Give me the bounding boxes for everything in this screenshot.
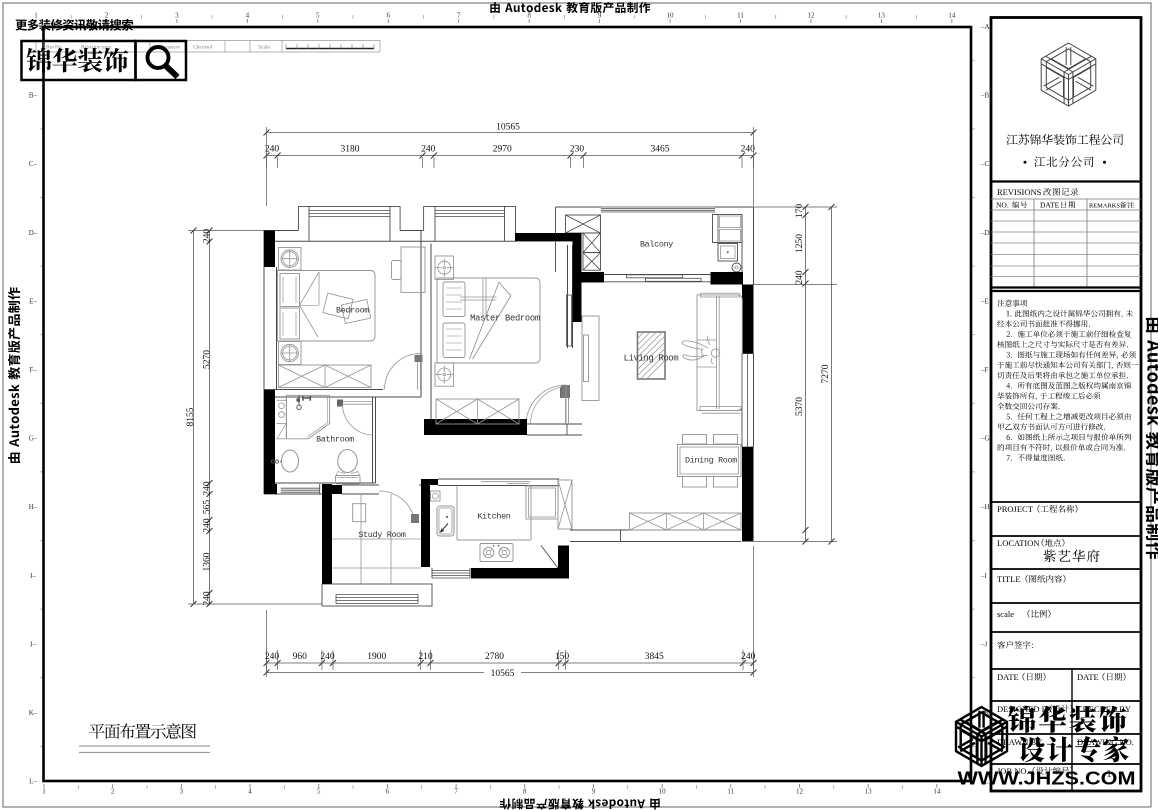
- svg-text:4: 4: [248, 788, 252, 796]
- svg-text:2: 2: [111, 788, 115, 796]
- svg-text:170: 170: [795, 204, 805, 219]
- svg-text:K–: K–: [29, 709, 38, 717]
- svg-text:240: 240: [203, 481, 213, 496]
- svg-text:10565: 10565: [491, 669, 515, 679]
- svg-text:10565: 10565: [496, 123, 520, 133]
- svg-text:7: 7: [457, 12, 461, 20]
- svg-text:–D: –D: [980, 229, 990, 237]
- svg-text:150: 150: [555, 652, 570, 662]
- svg-text:12: 12: [796, 788, 804, 796]
- svg-text:WWW.JHZS.COM: WWW.JHZS.COM: [958, 769, 1136, 789]
- svg-text:5270: 5270: [203, 350, 213, 369]
- svg-text:6: 6: [386, 788, 390, 796]
- svg-text:230: 230: [570, 145, 585, 155]
- svg-text:14: 14: [948, 12, 956, 20]
- svg-text:–A: –A: [980, 23, 990, 31]
- svg-text:9: 9: [592, 788, 596, 796]
- svg-text:5370: 5370: [795, 397, 805, 416]
- svg-text:960: 960: [293, 652, 308, 662]
- svg-text:Study Room: Study Room: [358, 530, 406, 540]
- svg-text:9: 9: [598, 12, 602, 20]
- svg-text:1: 1: [34, 12, 38, 20]
- svg-text:12: 12: [807, 12, 815, 20]
- svg-text:240: 240: [265, 145, 280, 155]
- svg-text:3180: 3180: [341, 145, 360, 155]
- svg-text:REVISIONS: REVISIONS: [997, 187, 1042, 197]
- svg-text:240: 240: [320, 652, 335, 662]
- svg-text:Scale: Scale: [258, 45, 270, 51]
- svg-text:8: 8: [523, 788, 527, 796]
- svg-text:3: 3: [175, 12, 179, 20]
- svg-text:Kitchen: Kitchen: [477, 512, 510, 522]
- svg-text:8155: 8155: [186, 407, 196, 426]
- svg-text:B–: B–: [29, 92, 38, 100]
- svg-text:10: 10: [667, 12, 675, 20]
- svg-text:PROJECT: PROJECT: [997, 504, 1034, 514]
- svg-text:Master Bedroom: Master Bedroom: [470, 314, 540, 324]
- svg-text:240: 240: [265, 652, 280, 662]
- svg-text:5: 5: [317, 788, 321, 796]
- svg-text:4: 4: [246, 12, 250, 20]
- svg-text:DATE: DATE: [1040, 201, 1060, 210]
- svg-text:10: 10: [659, 788, 667, 796]
- svg-text:11: 11: [727, 788, 734, 796]
- svg-text:3465: 3465: [651, 145, 670, 155]
- svg-text:240: 240: [203, 518, 213, 533]
- svg-text:–B: –B: [980, 92, 990, 100]
- svg-text:Bedroom: Bedroom: [336, 306, 369, 316]
- svg-text:–H: –H: [980, 503, 990, 511]
- svg-text:13: 13: [865, 788, 873, 796]
- svg-text:210: 210: [418, 652, 433, 662]
- svg-text:5: 5: [316, 12, 320, 20]
- svg-text:3: 3: [180, 788, 184, 796]
- svg-text:F–: F–: [29, 366, 37, 374]
- svg-text:E–: E–: [29, 297, 37, 305]
- svg-text:J–: J–: [30, 640, 37, 648]
- svg-text:14: 14: [933, 788, 941, 796]
- svg-text:–F: –F: [980, 366, 989, 374]
- svg-text:240: 240: [203, 591, 213, 606]
- svg-text:Bathroom: Bathroom: [316, 435, 354, 445]
- svg-text:1: 1: [42, 788, 46, 796]
- svg-text:–E: –E: [980, 297, 989, 305]
- svg-text:13: 13: [878, 12, 886, 20]
- svg-text:1250: 1250: [795, 234, 805, 253]
- svg-text:G–: G–: [29, 435, 38, 443]
- svg-text:I–: I–: [30, 572, 36, 580]
- svg-text:240: 240: [795, 270, 805, 285]
- svg-text:L–: L–: [29, 778, 37, 786]
- svg-text:7270: 7270: [821, 364, 831, 383]
- svg-text:–I: –I: [980, 572, 988, 580]
- svg-text:–G: –G: [980, 435, 990, 443]
- svg-text:Dining Room: Dining Room: [685, 455, 737, 465]
- svg-text:240: 240: [741, 145, 756, 155]
- svg-text:Checked: Checked: [193, 45, 212, 51]
- svg-text:Balcony: Balcony: [640, 240, 673, 250]
- svg-text:2: 2: [105, 12, 109, 20]
- svg-text:H–: H–: [29, 503, 38, 511]
- svg-text:C–: C–: [29, 160, 38, 168]
- svg-text:LOCATION: LOCATION: [997, 538, 1040, 548]
- svg-text:3845: 3845: [645, 652, 664, 662]
- svg-text:TITLE: TITLE: [997, 574, 1021, 584]
- svg-text:2780: 2780: [485, 652, 504, 662]
- svg-text:REMARKS: REMARKS: [1089, 203, 1120, 210]
- svg-text:7: 7: [454, 788, 458, 796]
- svg-text:–C: –C: [980, 160, 990, 168]
- svg-text:1360: 1360: [203, 552, 213, 571]
- svg-text:scale: scale: [997, 609, 1014, 619]
- svg-text:2970: 2970: [493, 145, 512, 155]
- svg-text:–J: –J: [980, 640, 988, 648]
- svg-text:8: 8: [527, 12, 531, 20]
- svg-text:DATE: DATE: [1077, 672, 1099, 682]
- svg-text:D–: D–: [29, 229, 38, 237]
- svg-text:Living Room: Living Room: [624, 354, 679, 364]
- svg-text:6: 6: [387, 12, 391, 20]
- svg-text:565: 565: [203, 500, 213, 515]
- svg-text:DATE: DATE: [997, 672, 1019, 682]
- svg-text:NO.: NO.: [996, 201, 1009, 210]
- svg-text:11: 11: [737, 12, 744, 20]
- svg-text:1900: 1900: [367, 652, 386, 662]
- svg-text:240: 240: [421, 145, 436, 155]
